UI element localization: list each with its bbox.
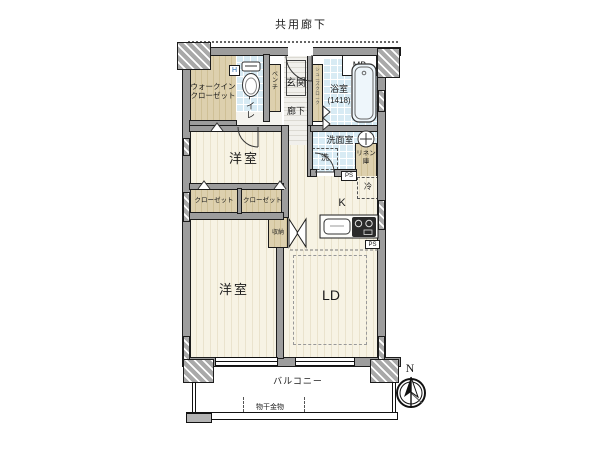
compass-icon	[397, 377, 425, 408]
wall-closet-divider	[238, 189, 241, 213]
kitchen-floor-left	[284, 145, 311, 252]
wall-closet-top	[190, 184, 283, 189]
balcony-post-right	[392, 382, 396, 413]
shared-corridor-label: 共用廊下	[263, 19, 339, 32]
kitchen-label: K	[335, 197, 349, 210]
bedroom-upper-label: 洋室	[222, 152, 266, 167]
closet-right-label: クローゼット	[243, 197, 281, 204]
pipe-space-lower-label: PS	[368, 242, 376, 248]
linen-line1: リネン	[355, 150, 377, 158]
wall-bath-bottom	[311, 126, 377, 131]
hatch-left-1	[183, 138, 190, 156]
hatch-right-1	[378, 90, 385, 112]
meter-box-label: MB	[353, 60, 367, 70]
wall-bedroom-upper-right	[282, 126, 288, 217]
wall-washroom-bottom-a	[311, 170, 316, 176]
hatch-balcony-left	[183, 359, 214, 383]
toilet-label: トイレ	[245, 92, 256, 121]
walk-in-closet-line2: クローゼット	[187, 91, 239, 100]
hatch-top-right	[377, 48, 400, 78]
wall-toilet-right	[264, 55, 269, 121]
balcony-label: バルコニー	[268, 376, 328, 386]
toilet-front-floor	[236, 112, 282, 126]
living-dining-label: LD	[315, 287, 347, 303]
hatch-balcony-right	[370, 359, 399, 383]
hatch-right-2	[378, 200, 385, 230]
linen-label: リネン 庫	[355, 150, 377, 166]
bedroom-lower-label: 洋室	[212, 283, 256, 298]
hallway-label: 廊下	[284, 106, 308, 116]
hatch-left-2	[183, 192, 190, 222]
shared-corridor-boundary	[188, 41, 398, 43]
hanger-pipe-mark: H	[229, 65, 240, 76]
pipe-space-upper-label: PS	[345, 173, 353, 179]
washer-label: 洗	[318, 153, 332, 162]
bench-label: ベンチ	[271, 72, 279, 91]
walk-in-closet-label: ウォークイン クローゼット	[187, 82, 239, 101]
laundry-mark-right	[304, 397, 305, 412]
hatch-top-left	[177, 42, 211, 70]
wall-hallway-right	[308, 55, 312, 130]
entrance-opening	[288, 47, 313, 56]
linen-line2: 庫	[355, 158, 377, 166]
balcony-railing	[186, 412, 398, 420]
bathroom-label: 浴室	[322, 84, 356, 94]
washroom-label: 洗面室	[320, 135, 360, 145]
fridge-label: 冷	[361, 182, 375, 191]
hanger-pipe-label: H	[232, 67, 237, 74]
wall-bedroom-lower-right	[277, 248, 283, 358]
storage-label: 収納	[269, 230, 287, 237]
walk-in-closet-line1: ウォークイン	[187, 82, 239, 91]
closet-left-label: クローゼット	[192, 197, 236, 204]
entrance-label: 玄関	[283, 78, 309, 90]
laundry-mark-left	[243, 397, 244, 412]
pipe-space-lower: PS	[365, 240, 380, 249]
north-label: N	[402, 362, 418, 376]
laundry-hardware-label: 物干金物	[246, 404, 294, 412]
wall-closet-bottom	[190, 213, 283, 219]
balcony-railing-end-left	[186, 413, 212, 423]
wall-washroom-left	[308, 126, 312, 176]
meter-box: MB	[342, 55, 377, 76]
window-living-dining	[295, 357, 355, 366]
bathroom-size-label: (1418)	[320, 96, 358, 105]
floor-plan: 共用廊下 MB	[0, 0, 600, 450]
window-bedroom-lower	[215, 357, 278, 366]
wall-bedroom-upper-top	[190, 126, 283, 131]
pipe-space-upper: PS	[341, 171, 357, 181]
balcony-post-left	[192, 382, 196, 413]
